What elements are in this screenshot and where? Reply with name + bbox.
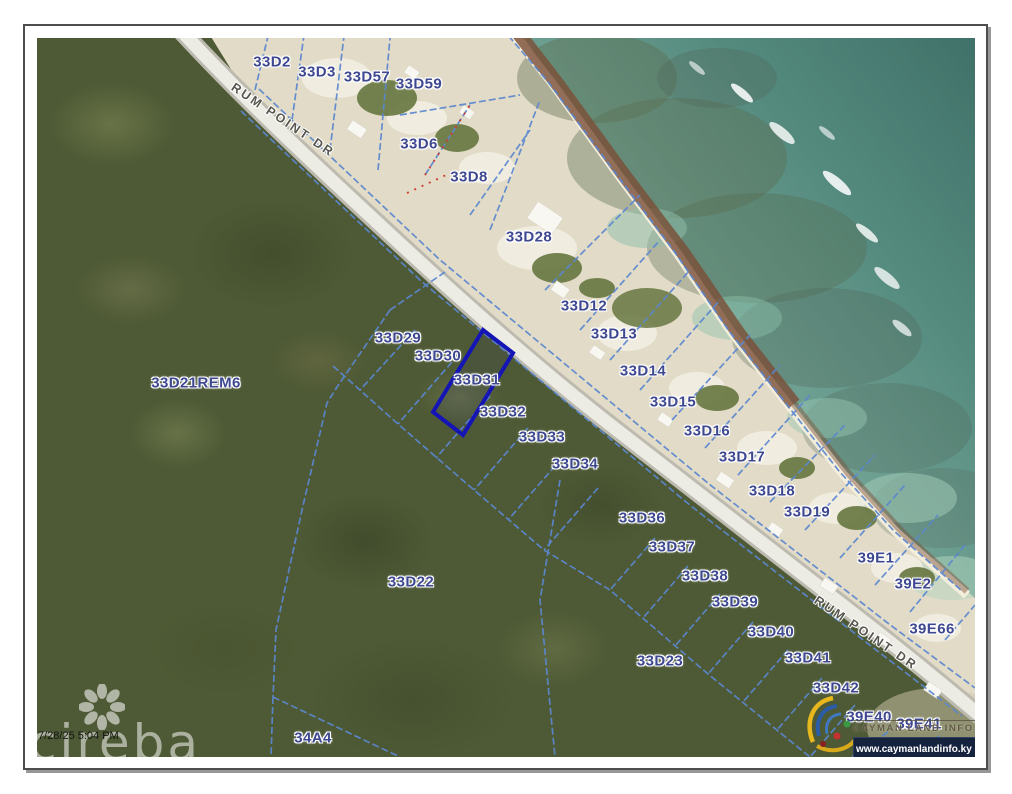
parcel-label-33D22: 33D22 [388,574,434,591]
parcel-label-33D3: 33D3 [298,64,335,81]
parcel-label-33D14: 33D14 [620,363,666,380]
parcel-label-33D39: 33D39 [712,594,758,611]
parcel-label-39E2: 39E2 [895,576,932,593]
logo-divider-line [853,720,975,721]
parcel-label-33D33: 33D33 [519,429,565,446]
cayman-land-info-logo: CAYMAN LAND INFO www.caymanlandinfo.ky [803,692,975,757]
parcel-label-33D23: 33D23 [637,653,683,670]
map-document: 33D233D333D5733D5933D633D833D2833D1233D1… [0,0,1012,794]
parcel-label-33D13: 33D13 [591,326,637,343]
parcel-label-34A4: 34A4 [294,730,331,747]
parcel-label-33D41: 33D41 [785,650,831,667]
parcel-label-33D32: 33D32 [480,404,526,421]
parcel-label-39E66: 39E66 [909,621,954,638]
parcel-label-33D15: 33D15 [650,394,696,411]
parcel-label-33D18: 33D18 [749,483,795,500]
parcel-label-33D57: 33D57 [344,69,390,86]
parcel-label-33D30: 33D30 [415,348,461,365]
parcel-label-33D28: 33D28 [506,229,552,246]
parcel-label-33D37: 33D37 [649,539,695,556]
parcel-labels-layer: 33D233D333D5733D5933D633D833D2833D1233D1… [37,38,975,757]
road-label: RUM POINT DR [229,80,338,160]
parcel-label-33D38: 33D38 [682,568,728,585]
parcel-label-33D40: 33D40 [748,624,794,641]
parcel-label-33D8: 33D8 [450,169,487,186]
provider-name: CAYMAN LAND INFO [853,723,975,734]
parcel-label-33D36: 33D36 [619,510,665,527]
parcel-label-33D12: 33D12 [561,298,607,315]
parcel-label-33D17: 33D17 [719,449,765,466]
parcel-label-33D2: 33D2 [253,54,290,71]
parcel-label-33D21REM6: 33D21REM6 [151,375,240,392]
parcel-label-39E1: 39E1 [858,550,895,567]
parcel-label-33D16: 33D16 [684,423,730,440]
parcel-label-33D59: 33D59 [396,76,442,93]
parcel-label-33D34: 33D34 [552,456,598,473]
parcel-label-33D19: 33D19 [784,504,830,521]
aerial-map: 33D233D333D5733D5933D633D833D2833D1233D1… [37,38,975,757]
parcel-label-33D31: 33D31 [454,372,500,389]
provider-url: www.caymanlandinfo.ky [856,744,972,755]
parcel-label-33D6: 33D6 [400,136,437,153]
parcel-label-33D29: 33D29 [375,330,421,347]
print-timestamp: 7/28/25 5:04 PM [38,730,119,742]
provider-url-bar: www.caymanlandinfo.ky [853,737,975,757]
